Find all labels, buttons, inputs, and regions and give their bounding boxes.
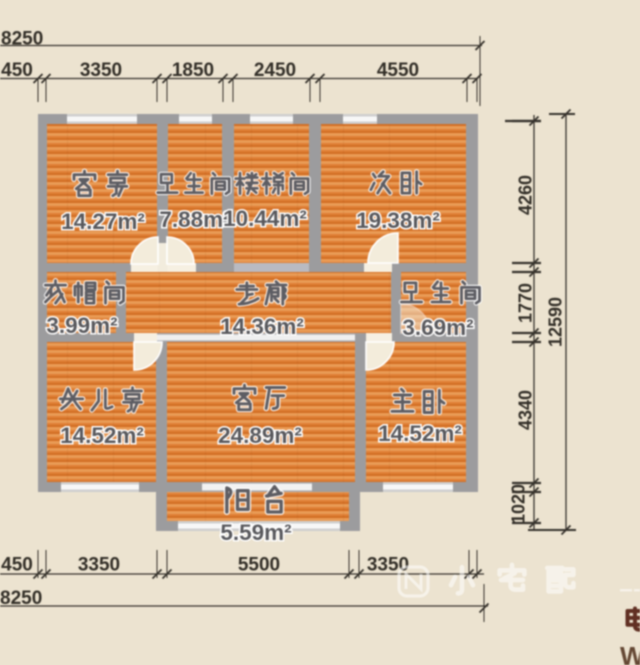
- svg-text:5500: 5500: [238, 555, 280, 576]
- svg-text:12590: 12590: [545, 297, 565, 347]
- svg-text:10.44m²: 10.44m²: [223, 206, 307, 231]
- svg-text:8250: 8250: [0, 588, 42, 609]
- svg-text:7.88m²: 7.88m²: [159, 207, 231, 232]
- svg-text:4340: 4340: [515, 390, 535, 430]
- svg-text:14.52m²: 14.52m²: [378, 421, 462, 446]
- svg-text:4260: 4260: [515, 175, 535, 215]
- svg-text:14.27m²: 14.27m²: [61, 209, 145, 234]
- svg-text:450: 450: [1, 60, 33, 81]
- svg-text:W: W: [620, 641, 640, 665]
- svg-text:3350: 3350: [367, 555, 409, 576]
- svg-text:3.99m²: 3.99m²: [46, 313, 118, 338]
- svg-text:19.38m²: 19.38m²: [356, 208, 440, 233]
- svg-text:8250: 8250: [1, 29, 43, 50]
- svg-text:5.59m²: 5.59m²: [220, 520, 292, 545]
- svg-text:2450: 2450: [254, 60, 296, 81]
- svg-text:450: 450: [1, 555, 33, 576]
- svg-text:24.89m²: 24.89m²: [218, 423, 302, 448]
- svg-text:14.36m²: 14.36m²: [220, 314, 304, 339]
- svg-text:1770: 1770: [515, 283, 535, 323]
- svg-text:4550: 4550: [377, 60, 419, 81]
- svg-text:1020: 1020: [508, 484, 528, 524]
- svg-text:3.69m²: 3.69m²: [402, 315, 474, 340]
- svg-text:3350: 3350: [78, 555, 120, 576]
- svg-text:14.52m²: 14.52m²: [60, 423, 144, 448]
- svg-text:3350: 3350: [80, 60, 122, 81]
- svg-text:1850: 1850: [172, 60, 214, 81]
